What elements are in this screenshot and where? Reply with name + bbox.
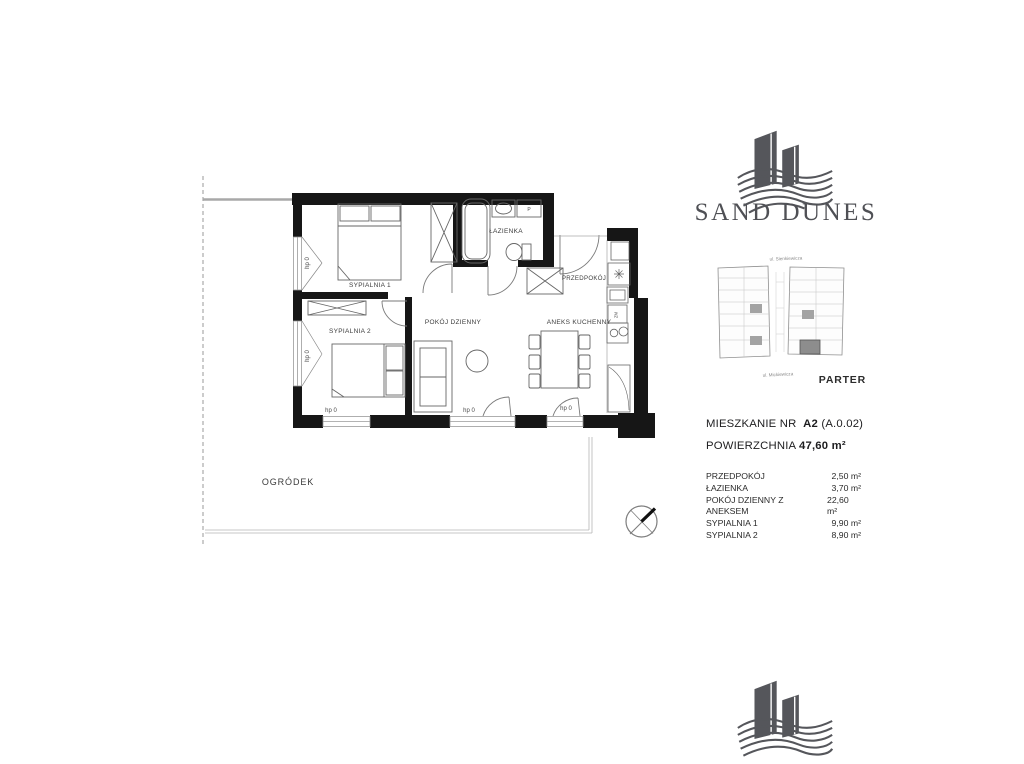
dining-set	[529, 331, 590, 388]
label-sill: hp 0	[463, 408, 475, 414]
toilet	[506, 244, 522, 261]
room-name: PRZEDPOKÓJ	[706, 471, 765, 483]
bathtub	[462, 199, 490, 263]
apartment-title-prefix: MIESZKANIE NR	[706, 418, 796, 430]
label-dishwasher: ZM	[614, 311, 619, 318]
room-name: SYPIALNIA 1	[706, 518, 758, 530]
site-plan-map: ul. Sienkiewicza ul. Mickiewicza	[706, 248, 870, 382]
label-living-room: POKÓJ DZIENNY	[425, 317, 482, 326]
room-name: SYPIALNIA 2	[706, 530, 758, 542]
room-area: 8,90 m²	[832, 530, 861, 542]
brand-logo-bottom-partial	[735, 678, 835, 764]
north-needle	[642, 509, 656, 522]
page: { "brand": { "name": "SAND DUNES" }, "si…	[0, 0, 1024, 732]
dining-table	[541, 331, 578, 388]
room-area-table: PRZEDPOKÓJ 2,50 m² ŁAZIENKA 3,70 m² POKÓ…	[706, 471, 861, 542]
room-area: 2,50 m²	[832, 471, 861, 483]
cabinet	[611, 242, 629, 260]
room-name: POKÓJ DZIENNY Z ANEKSEM	[706, 495, 827, 519]
street-top-label: ul. Sienkiewicza	[770, 255, 803, 261]
label-sill: hp 0	[325, 408, 337, 414]
building-right	[788, 267, 844, 355]
label-bedroom2: SYPIALNIA 2	[329, 328, 371, 335]
label-washer: P	[527, 207, 531, 213]
north-compass	[622, 503, 662, 543]
room-name: ŁAZIENKA	[706, 483, 748, 495]
kitchen-fixtures	[607, 240, 630, 413]
plan-labels: SYPIALNIA 1 ŁAZIENKA PRZEDPOKÓJ SYPIALNI…	[262, 207, 619, 487]
room-area: 9,90 m²	[832, 518, 861, 530]
bedroom2-furniture	[308, 301, 405, 397]
area-value: 47,60 m²	[799, 440, 846, 452]
apartment-title: MIESZKANIE NR A2 (A.0.02)	[706, 418, 926, 430]
hallway-furniture	[527, 268, 563, 294]
double-bed	[338, 204, 401, 280]
fridge	[608, 365, 630, 412]
double-bed	[332, 344, 405, 397]
table-row: ŁAZIENKA 3,70 m²	[706, 483, 861, 495]
walls	[292, 193, 655, 438]
label-kitchenette: ANEKS KUCHENNY	[547, 319, 612, 326]
floor-plan: SYPIALNIA 1 ŁAZIENKA PRZEDPOKÓJ SYPIALNI…	[185, 160, 665, 550]
label-bathroom: ŁAZIENKA	[489, 228, 523, 235]
area-label: POWIERZCHNIA	[706, 440, 796, 452]
round-table	[466, 350, 488, 372]
room-area: 3,70 m²	[832, 483, 861, 495]
label-sill: hp 0	[305, 257, 311, 269]
brand-name: SAND DUNES	[690, 199, 882, 227]
apartment-area: POWIERZCHNIA 47,60 m²	[706, 440, 926, 452]
label-sill: hp 0	[305, 350, 311, 362]
table-row: PRZEDPOKÓJ 2,50 m²	[706, 471, 861, 483]
floor-level-label: PARTER	[706, 374, 866, 386]
central-path	[776, 272, 784, 352]
table-row: SYPIALNIA 1 9,90 m²	[706, 518, 861, 530]
label-sill: hp 0	[560, 406, 572, 412]
building-left	[718, 266, 770, 358]
bedroom1-furniture	[338, 203, 457, 280]
label-hallway: PRZEDPOKÓJ	[562, 275, 606, 282]
label-bedroom1: SYPIALNIA 1	[349, 282, 391, 289]
apartment-code: (A.0.02)	[821, 418, 863, 430]
highlighted-unit	[800, 340, 820, 354]
table-row: SYPIALNIA 2 8,90 m²	[706, 530, 861, 542]
room-area: 22,60 m²	[827, 495, 861, 519]
apartment-number: A2	[803, 418, 818, 430]
table-row: POKÓJ DZIENNY Z ANEKSEM 22,60 m²	[706, 495, 861, 519]
garden-boundary	[203, 176, 592, 547]
living-room-furniture	[414, 341, 488, 412]
label-garden: OGRÓDEK	[262, 477, 314, 487]
